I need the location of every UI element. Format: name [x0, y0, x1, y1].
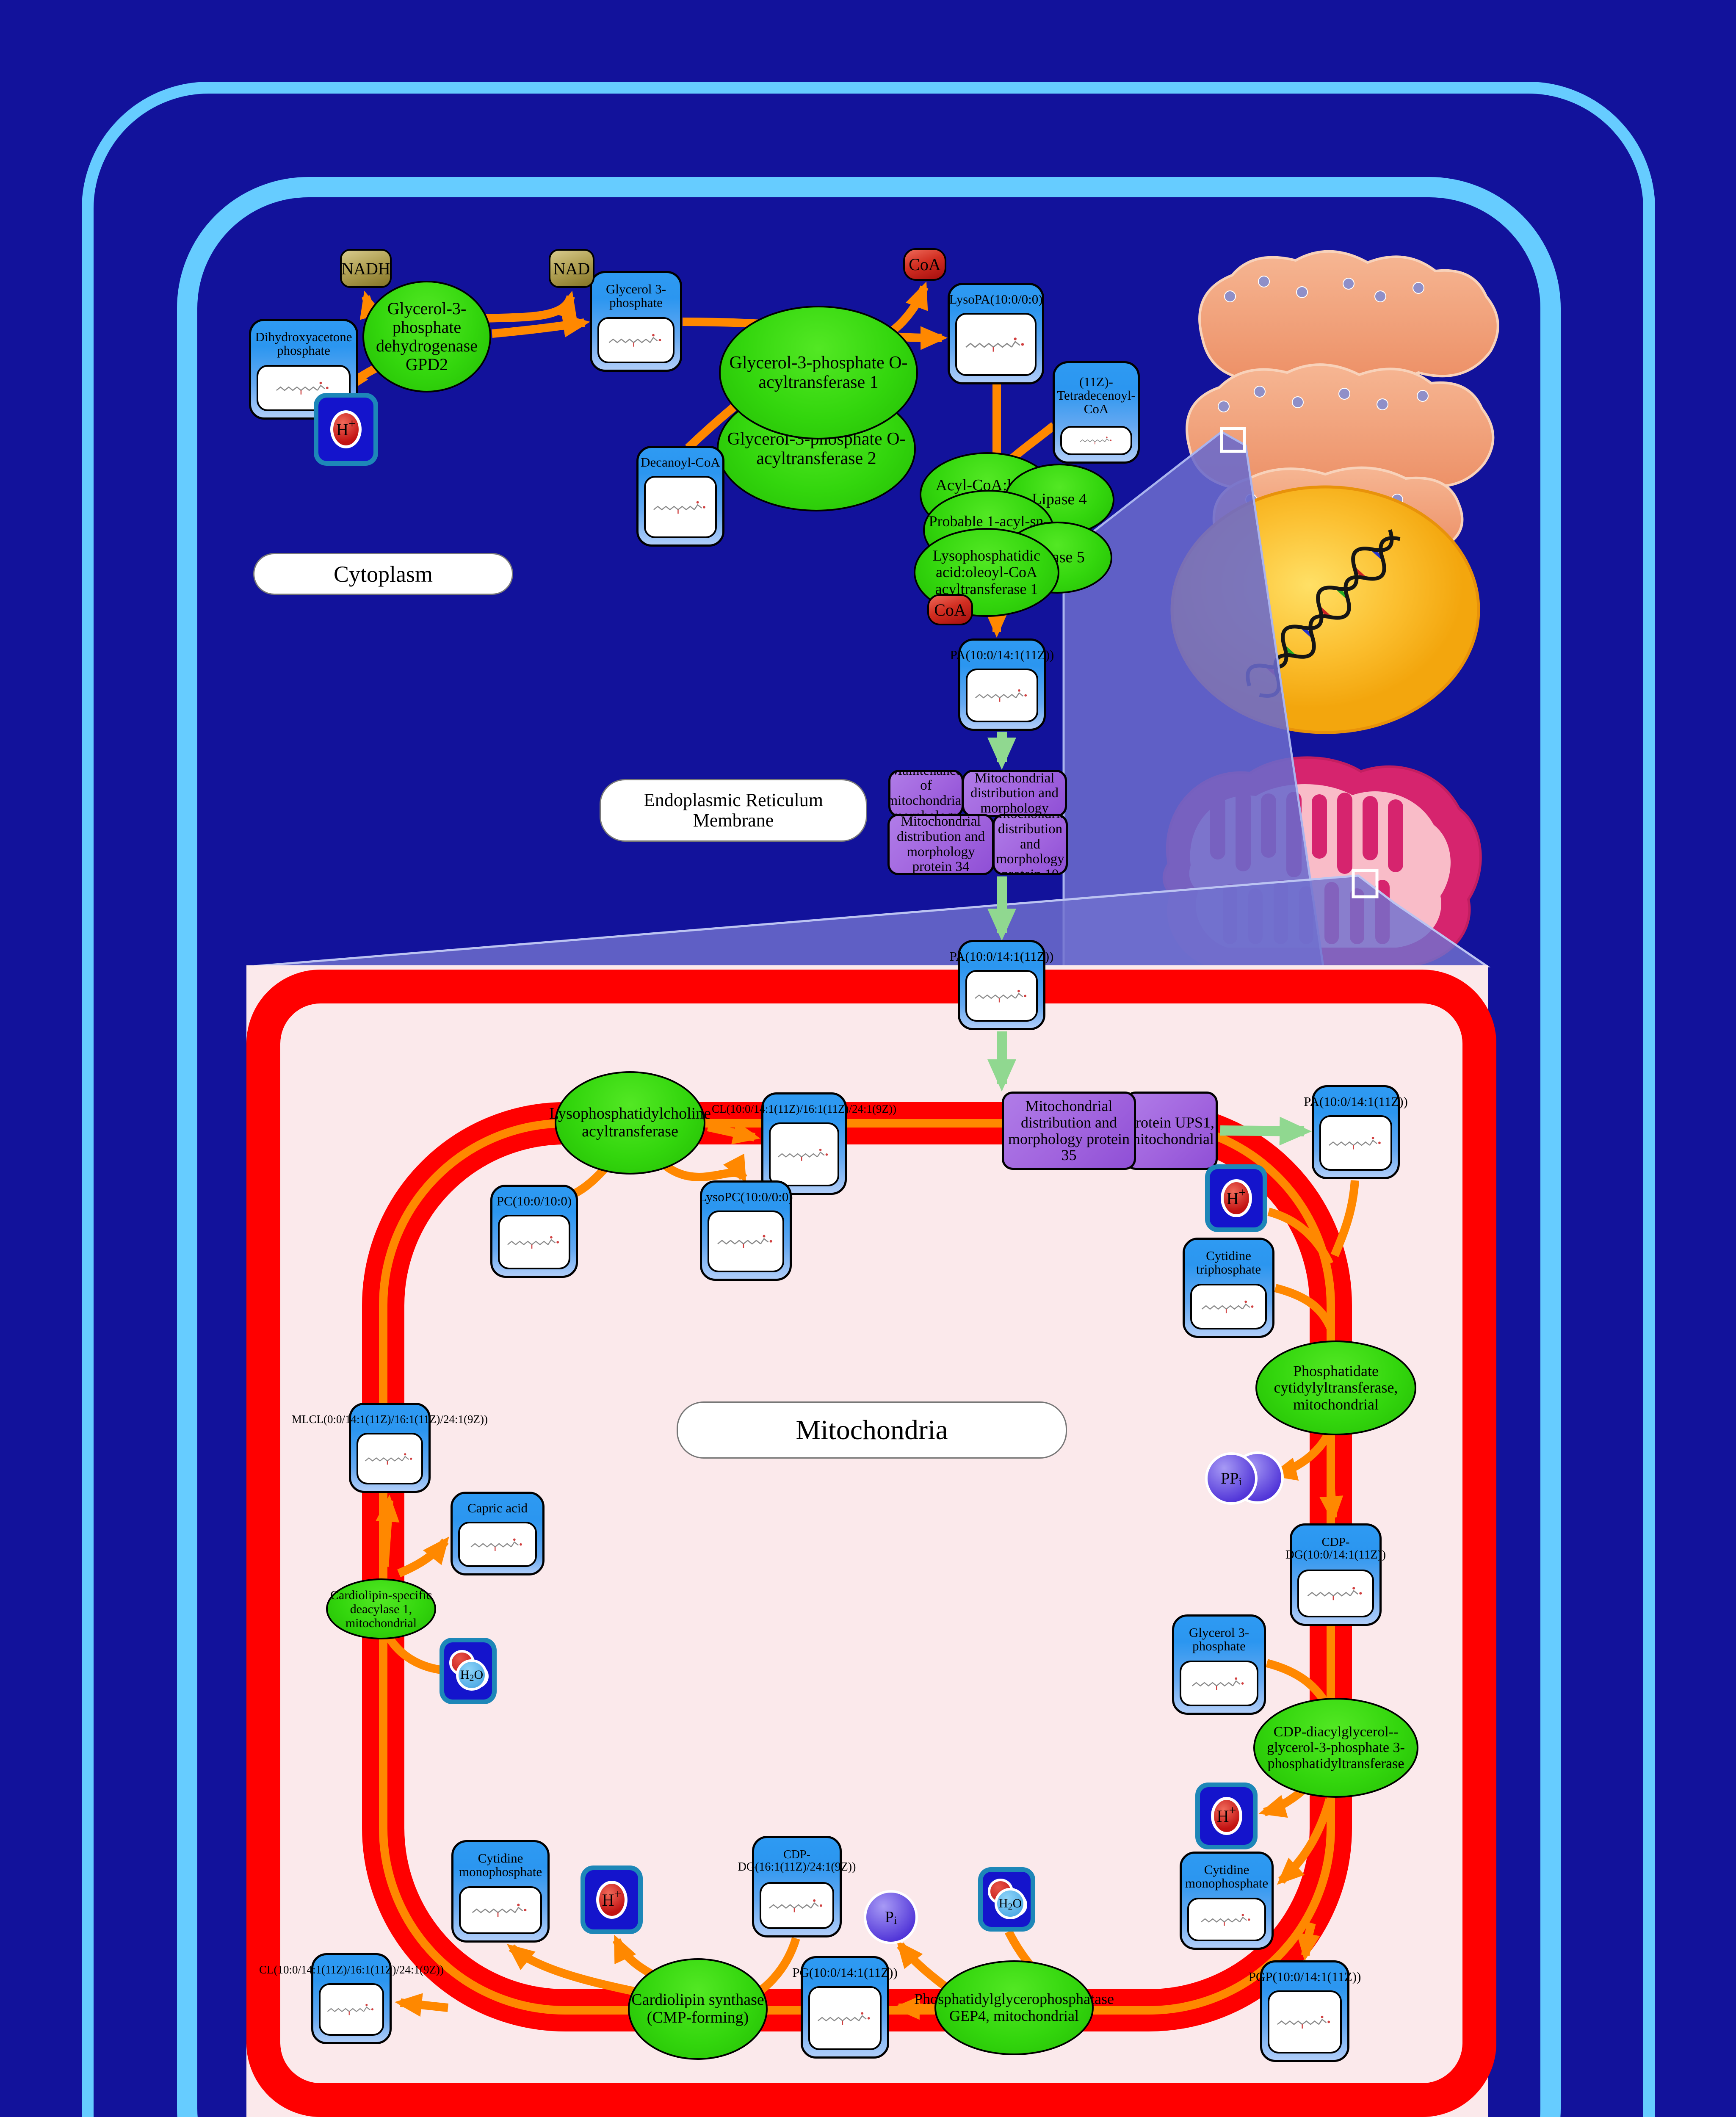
- complex-mdm35[interactable]: Mitochondrial distribution and morpholog…: [1002, 1092, 1136, 1170]
- node-lysopc[interactable]: LysoPC(10:0/0:0): [700, 1180, 792, 1281]
- complex-label: Mitochondrial distribution and morpholog…: [964, 771, 1065, 816]
- node-title: PA(10:0/14:1(11Z)): [960, 642, 1044, 668]
- hplus-icon: H+: [330, 410, 362, 448]
- node-pg[interactable]: PG(10:0/14:1(11Z)): [801, 1956, 889, 2059]
- enzyme-lpcat[interactable]: Lysophosphatidylcholine acyltransferase: [555, 1071, 705, 1175]
- node-glycerol-3-phosphate-er[interactable]: Glycerol 3-phosphate: [590, 271, 682, 372]
- molecule-structure-icon: [459, 1886, 542, 1934]
- ion-h2o-deacylase[interactable]: H2O: [440, 1638, 497, 1704]
- badge-label: CoA: [909, 254, 941, 274]
- molecule-structure-icon: [1190, 1284, 1267, 1329]
- node-title: PG(10:0/14:1(11Z)): [803, 1960, 887, 1985]
- hplus-icon: H+: [596, 1881, 628, 1919]
- node-decanoyl-coa[interactable]: Decanoyl-CoA: [636, 446, 724, 547]
- complex-mdm10[interactable]: Mitochondrial distribution and morpholog…: [992, 814, 1068, 875]
- node-title: CDP-DG(10:0/14:1(11Z)): [1292, 1527, 1379, 1570]
- node-tetradecenoyl-coa[interactable]: (11Z)-Tetradecenoyl-CoA: [1053, 361, 1140, 464]
- node-pa-er[interactable]: PA(10:0/14:1(11Z)): [958, 638, 1046, 731]
- complex-maintenance-mito-morphology[interactable]: Maintenance of mitochondrial morphology: [888, 770, 964, 817]
- molecule-structure-icon: [1060, 426, 1132, 455]
- node-title: CDP-DG(16:1(11Z)/24:1(9Z)): [754, 1840, 840, 1882]
- ppi-circle: PPi: [1205, 1452, 1258, 1505]
- molecule-structure-icon: [319, 1983, 384, 2036]
- mitochondrion-zoom-beam: [254, 876, 1487, 966]
- cytoplasm-label: Cytoplasm: [253, 553, 513, 595]
- node-title: (11Z)-Tetradecenoyl-CoA: [1055, 365, 1138, 426]
- complex-label: Mitochondrial distribution and morpholog…: [1004, 1098, 1134, 1164]
- node-title: Cytidine triphosphate: [1185, 1241, 1272, 1284]
- badge-label: NAD: [553, 259, 590, 279]
- hplus-icon: H+: [1211, 1797, 1242, 1835]
- ion-hplus-cdgpt[interactable]: H+: [1195, 1783, 1258, 1849]
- molecule-structure-icon: [708, 1211, 784, 1272]
- node-ctp[interactable]: Cytidine triphosphate: [1183, 1238, 1274, 1338]
- node-cl-top[interactable]: CL(10:0/14:1(11Z)/16:1(11Z)/24:1(9Z)): [761, 1092, 847, 1195]
- node-title: CL(10:0/14:1(11Z)/16:1(11Z)/24:1(9Z)): [763, 1096, 845, 1122]
- enzyme-gpat1[interactable]: Glycerol-3-phosphate O-acyltransferase 1: [719, 306, 918, 439]
- badge-nad[interactable]: NAD: [549, 249, 594, 288]
- node-title: Cytidine monophosphate: [1182, 1855, 1272, 1898]
- enzyme-label: Cardiolipin synthase (CMP-forming): [630, 1991, 766, 2027]
- molecule-structure-icon: [498, 1215, 570, 1269]
- badge-coa-top[interactable]: CoA: [903, 248, 946, 281]
- enzyme-phosphatidate-cytidylyltransferase[interactable]: Phosphatidate cytidylyltransferase, mito…: [1255, 1340, 1416, 1435]
- h2o-icon: H2O: [456, 1659, 487, 1691]
- ion-hplus-cls[interactable]: H+: [581, 1866, 643, 1934]
- complex-ups1[interactable]: protein UPS1, mitochondrial: [1125, 1092, 1218, 1170]
- badge-coa-er[interactable]: CoA: [927, 594, 973, 625]
- molecule-structure-icon: [458, 1522, 537, 1567]
- pi-node[interactable]: Pi: [864, 1890, 918, 1944]
- mitochondria-label: Mitochondria: [677, 1401, 1067, 1459]
- enzyme-cardiolipin-deacylase[interactable]: Cardiolipin-specific deacylase 1, mitoch…: [326, 1578, 436, 1639]
- enzyme-label: Glycerol-3-phosphate O-acyltransferase 1: [721, 353, 916, 392]
- enzyme-label: Lysophosphatidic acid:oleoyl-CoA acyltra…: [915, 547, 1058, 598]
- node-title: Capric acid: [453, 1495, 542, 1521]
- molecule-structure-icon: [769, 1122, 839, 1186]
- node-cdp-dg-1[interactable]: CDP-DG(10:0/14:1(11Z)): [1290, 1523, 1382, 1626]
- pathway-canvas: Glycerol-3-phosphate dehydrogenase GPD2 …: [0, 0, 1736, 2117]
- complex-label: Mitochondrial distribution and morpholog…: [992, 814, 1068, 875]
- complex-label: Maintenance of mitochondrial morphology: [888, 770, 964, 817]
- node-title: Dihydroxyacetone phosphate: [251, 323, 356, 365]
- complex-mdm[interactable]: Mitochondrial distribution and morpholog…: [962, 770, 1067, 817]
- enzyme-label: Phosphatidate cytidylyltransferase, mito…: [1257, 1363, 1415, 1413]
- node-title: MLCL(0:0/14:1(11Z)/16:1(11Z)/24:1(9Z)): [351, 1407, 428, 1432]
- node-title: PA(10:0/14:1(11Z)): [1314, 1089, 1398, 1114]
- node-title: Glycerol 3-phosphate: [1174, 1618, 1264, 1661]
- molecule-structure-icon: [965, 970, 1038, 1022]
- molecule-structure-icon: [1187, 1898, 1266, 1941]
- molecule-structure-icon: [1268, 1990, 1342, 2053]
- molecule-structure-icon: [644, 476, 717, 538]
- node-title: LysoPC(10:0/0:0): [702, 1184, 790, 1210]
- node-pa-inner-membrane[interactable]: PA(10:0/14:1(11Z)): [1312, 1085, 1400, 1179]
- hplus-icon: H+: [1221, 1179, 1252, 1217]
- node-title: PGP(10:0/14:1(11Z)): [1262, 1964, 1347, 1990]
- molecule-structure-icon: [597, 317, 674, 363]
- node-pc[interactable]: PC(10:0/10:0): [490, 1185, 578, 1278]
- enzyme-cdp-dag-g3p-phosphatidyltransferase[interactable]: CDP-diacylglycerol--glycerol-3-phosphate…: [1253, 1698, 1418, 1798]
- molecule-structure-icon: [966, 669, 1038, 722]
- node-title: PA(10:0/14:1(11Z)): [960, 944, 1043, 969]
- node-mlcl[interactable]: MLCL(0:0/14:1(11Z)/16:1(11Z)/24:1(9Z)): [349, 1403, 431, 1493]
- badge-nadh[interactable]: NADH: [340, 249, 392, 288]
- node-title: Cytidine monophosphate: [453, 1844, 547, 1886]
- molecule-structure-icon: [1319, 1115, 1392, 1171]
- node-lysopa[interactable]: LysoPA(10:0/0:0): [948, 283, 1044, 384]
- molecule-structure-icon: [357, 1433, 423, 1484]
- node-cl-bottom[interactable]: CL(10:0/14:1(11Z)/16:1(11Z)/24:1(9Z)): [311, 1953, 392, 2044]
- node-cmp-right[interactable]: Cytidine monophosphate: [1180, 1852, 1274, 1950]
- complex-label: protein UPS1, mitochondrial: [1127, 1114, 1216, 1147]
- badge-label: NADH: [341, 259, 390, 279]
- node-cdp-dg-2[interactable]: CDP-DG(16:1(11Z)/24:1(9Z)): [752, 1836, 842, 1937]
- enzyme-cardiolipin-synthase[interactable]: Cardiolipin synthase (CMP-forming): [628, 1958, 768, 2060]
- enzyme-label: Phosphatidylglycerophosphatase GEP4, mit…: [914, 1991, 1114, 2024]
- ion-hplus-ctp[interactable]: H+: [1205, 1164, 1267, 1232]
- node-title: Glycerol 3-phosphate: [592, 275, 680, 317]
- enzyme-label: CDP-diacylglycerol--glycerol-3-phosphate…: [1255, 1724, 1417, 1772]
- node-pgp[interactable]: PGP(10:0/14:1(11Z)): [1260, 1960, 1349, 2062]
- er-membrane-label: Endoplasmic Reticulum Membrane: [600, 779, 867, 842]
- node-title: Decanoyl-CoA: [639, 450, 722, 475]
- node-title: PC(10:0/10:0): [492, 1188, 576, 1214]
- molecule-structure-icon: [808, 1986, 882, 2050]
- node-capric-acid[interactable]: Capric acid: [451, 1492, 545, 1575]
- h2o-icon: H2O: [995, 1888, 1026, 1919]
- node-title: LysoPA(10:0/0:0): [950, 287, 1042, 312]
- badge-label: CoA: [934, 600, 966, 620]
- ion-h2o-gep4[interactable]: H2O: [978, 1867, 1035, 1932]
- node-pa-outer-membrane[interactable]: PA(10:0/14:1(11Z)): [958, 940, 1045, 1030]
- molecule-structure-icon: [1297, 1570, 1374, 1617]
- node-title: CL(10:0/14:1(11Z)/16:1(11Z)/24:1(9Z)): [313, 1957, 390, 1982]
- molecule-structure-icon: [760, 1882, 834, 1929]
- ion-hplus-cytoplasm[interactable]: H+: [314, 393, 378, 466]
- enzyme-label: Lysophosphatidylcholine acyltransferase: [549, 1105, 711, 1141]
- enzyme-label: Glycerol-3-phosphate dehydrogenase GPD2: [364, 299, 489, 374]
- enzyme-gpd2[interactable]: Glycerol-3-phosphate dehydrogenase GPD2: [362, 281, 491, 392]
- complex-mdm34[interactable]: Mitochondrial distribution and morpholog…: [887, 814, 994, 875]
- enzyme-label: Cardiolipin-specific deacylase 1, mitoch…: [328, 1588, 434, 1630]
- complex-label: Mitochondrial distribution and morpholog…: [890, 814, 992, 875]
- molecule-structure-icon: [1180, 1661, 1258, 1706]
- node-glycerol-3-phosphate-mito[interactable]: Glycerol 3-phosphate: [1172, 1614, 1266, 1715]
- node-cmp-left[interactable]: Cytidine monophosphate: [451, 1840, 550, 1943]
- molecule-structure-icon: [955, 313, 1037, 376]
- enzyme-gep4[interactable]: Phosphatidylglycerophosphatase GEP4, mit…: [934, 1960, 1094, 2055]
- ppi-node[interactable]: PPi: [1205, 1451, 1283, 1502]
